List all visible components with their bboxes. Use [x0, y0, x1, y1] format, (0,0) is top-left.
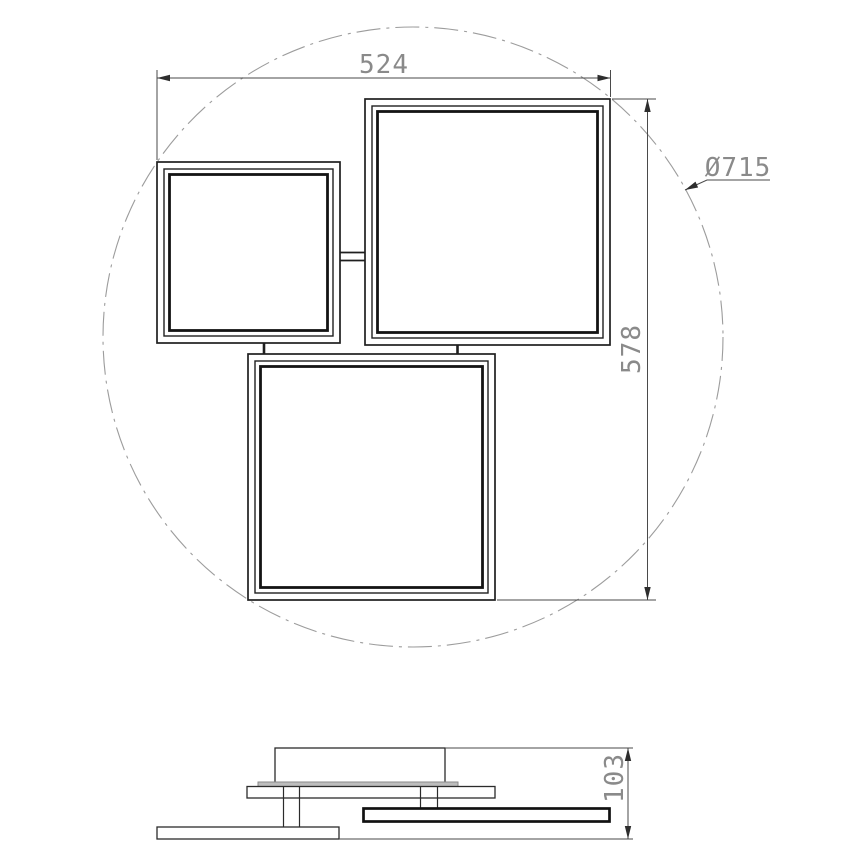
height-arrow-bottom — [644, 587, 650, 600]
height-dimension-label: 578 — [617, 324, 647, 374]
side-right-panel — [364, 809, 610, 822]
square-connectors — [264, 253, 458, 355]
square-bottom — [248, 354, 495, 600]
square-large-inner-frame — [378, 112, 598, 333]
height-arrow-top — [644, 99, 650, 112]
thickness-dimension-label: 103 — [600, 753, 630, 803]
width-arrow-left — [157, 75, 170, 81]
square-large — [365, 99, 610, 345]
diameter-leader: Ø715 — [685, 153, 771, 190]
height-dimension: 578 — [497, 99, 656, 600]
diameter-label: Ø715 — [705, 153, 772, 183]
square-small-middle-frame — [164, 169, 333, 336]
side-left-panel — [157, 827, 339, 839]
square-small-inner-frame — [170, 175, 328, 331]
diameter-arrow — [685, 182, 698, 190]
square-bottom-middle-frame — [255, 361, 488, 593]
width-arrow-right — [598, 75, 611, 81]
thickness-arrow-bottom — [625, 826, 631, 839]
square-small-outer-frame — [157, 162, 340, 343]
side-view — [157, 748, 610, 839]
side-canopy-box — [275, 748, 445, 783]
square-bottom-inner-frame — [261, 367, 483, 588]
width-dimension-label: 524 — [359, 50, 409, 80]
technical-drawing-canvas: 524 578 Ø715 — [0, 0, 868, 868]
square-small — [157, 162, 340, 343]
drawing-svg: 524 578 Ø715 — [0, 0, 868, 868]
square-bottom-outer-frame — [248, 354, 495, 600]
side-mounting-bar — [247, 787, 495, 799]
square-large-outer-frame — [365, 99, 610, 345]
square-large-middle-frame — [372, 106, 603, 338]
width-dimension: 524 — [157, 50, 611, 160]
side-mounting-strip — [258, 782, 458, 787]
